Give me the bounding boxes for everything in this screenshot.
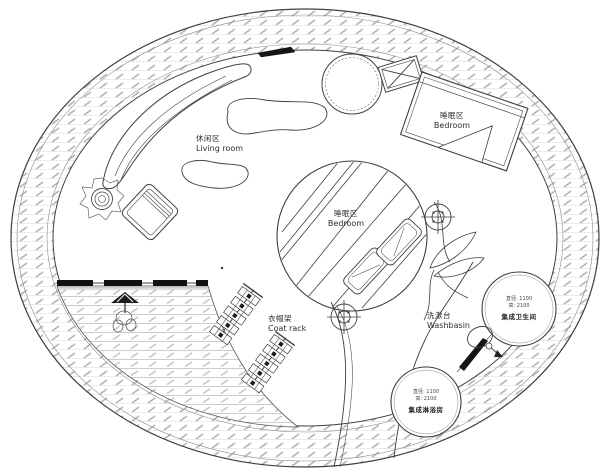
label-shower-pod: 直径: 1100 高: 2100 集成淋浴房 xyxy=(409,389,444,414)
label-living-room-zh: 休闲区 xyxy=(196,134,243,144)
label-washbasin: 洗漱台 Washbasin xyxy=(427,311,470,331)
terrace-window-wall xyxy=(57,280,208,286)
shower-pod-height: 高: 2100 xyxy=(409,396,444,403)
label-bedroom-upper: 睡眠区 Bedroom xyxy=(434,111,470,131)
label-coat-rack-en: Coat rack xyxy=(268,324,306,334)
label-bedroom-center: 睡眠区 Bedroom xyxy=(328,209,364,229)
label-bedroom-upper-zh: 睡眠区 xyxy=(434,111,470,121)
bathroom-pod-height: 高: 2100 xyxy=(502,303,537,310)
floor-plan-drawing xyxy=(0,0,611,473)
label-coat-rack: 衣帽架 Coat rack xyxy=(268,314,306,334)
label-coat-rack-zh: 衣帽架 xyxy=(268,314,306,324)
label-bedroom-center-zh: 睡眠区 xyxy=(328,209,364,219)
label-bedroom-upper-en: Bedroom xyxy=(434,121,470,131)
label-living-room: 休闲区 Living room xyxy=(196,134,243,154)
bathroom-pod-name: 集成卫生间 xyxy=(502,310,537,320)
shower-pod-name: 集成淋浴房 xyxy=(409,403,444,413)
label-bedroom-center-en: Bedroom xyxy=(328,219,364,229)
dot-marker xyxy=(221,267,223,269)
label-bathroom-pod: 直径: 1100 高: 2100 集成卫生间 xyxy=(502,296,537,321)
floor-plan: 休闲区 Living room 睡眠区 Bedroom 睡眠区 Bedroom … xyxy=(0,0,611,473)
label-washbasin-zh: 洗漱台 xyxy=(427,311,470,321)
bathroom-pod-diameter: 直径: 1100 xyxy=(502,296,537,303)
label-washbasin-en: Washbasin xyxy=(427,321,470,331)
round-table xyxy=(322,54,382,114)
label-living-room-en: Living room xyxy=(196,144,243,154)
shower-pod-diameter: 直径: 1100 xyxy=(409,389,444,396)
